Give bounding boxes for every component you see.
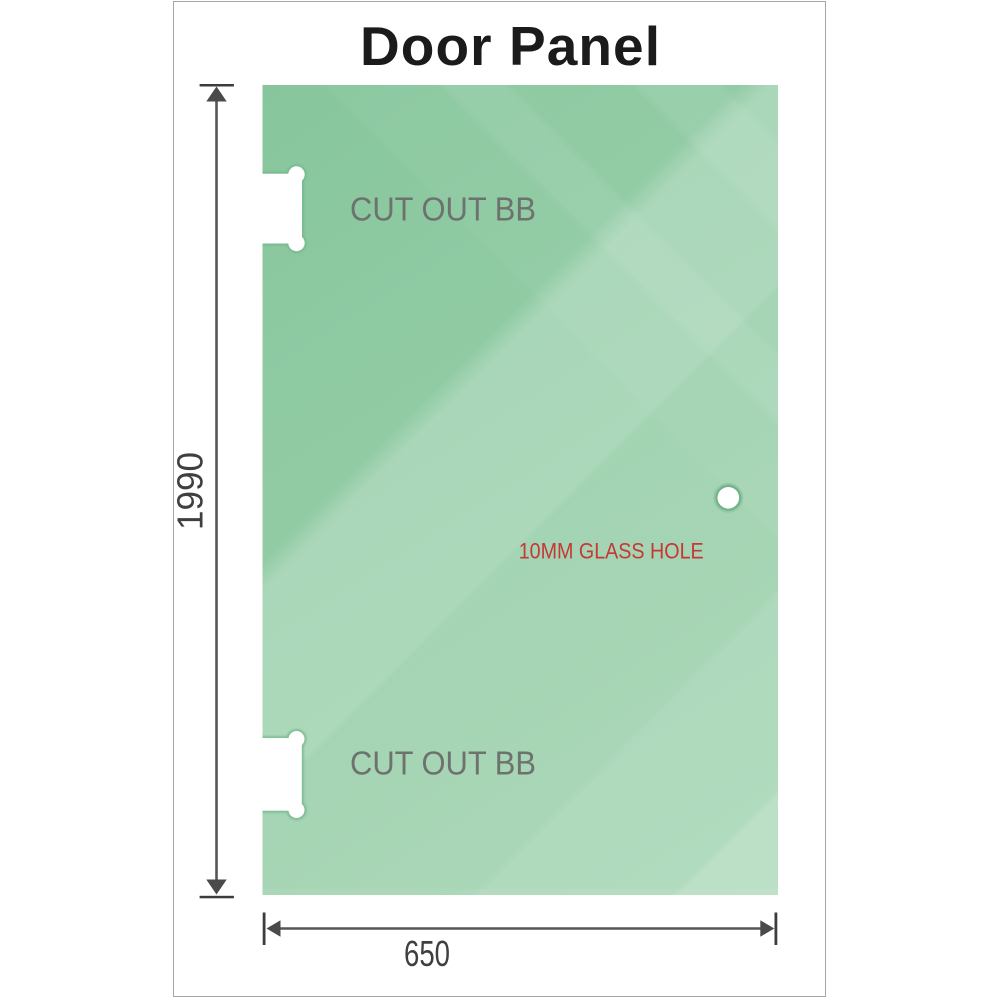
svg-text:CUT OUT BB: CUT OUT BB xyxy=(350,191,536,228)
svg-text:CUT OUT BB: CUT OUT BB xyxy=(350,745,536,782)
svg-text:Door Panel: Door Panel xyxy=(360,15,660,77)
svg-text:10MM GLASS HOLE: 10MM GLASS HOLE xyxy=(519,538,704,563)
svg-text:650: 650 xyxy=(404,933,450,974)
svg-text:1990: 1990 xyxy=(170,452,211,530)
